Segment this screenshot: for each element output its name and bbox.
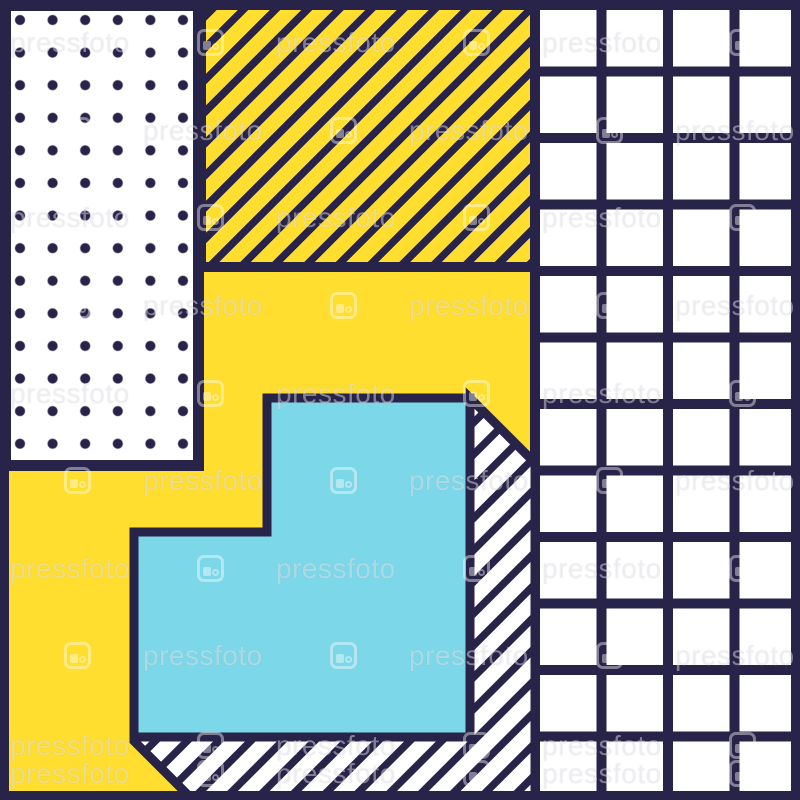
memphis-pattern-image: pressfotopressfotopressfotopressfotopres… — [0, 0, 800, 800]
step-shape — [134, 398, 470, 737]
step-shape-layer — [0, 0, 800, 800]
